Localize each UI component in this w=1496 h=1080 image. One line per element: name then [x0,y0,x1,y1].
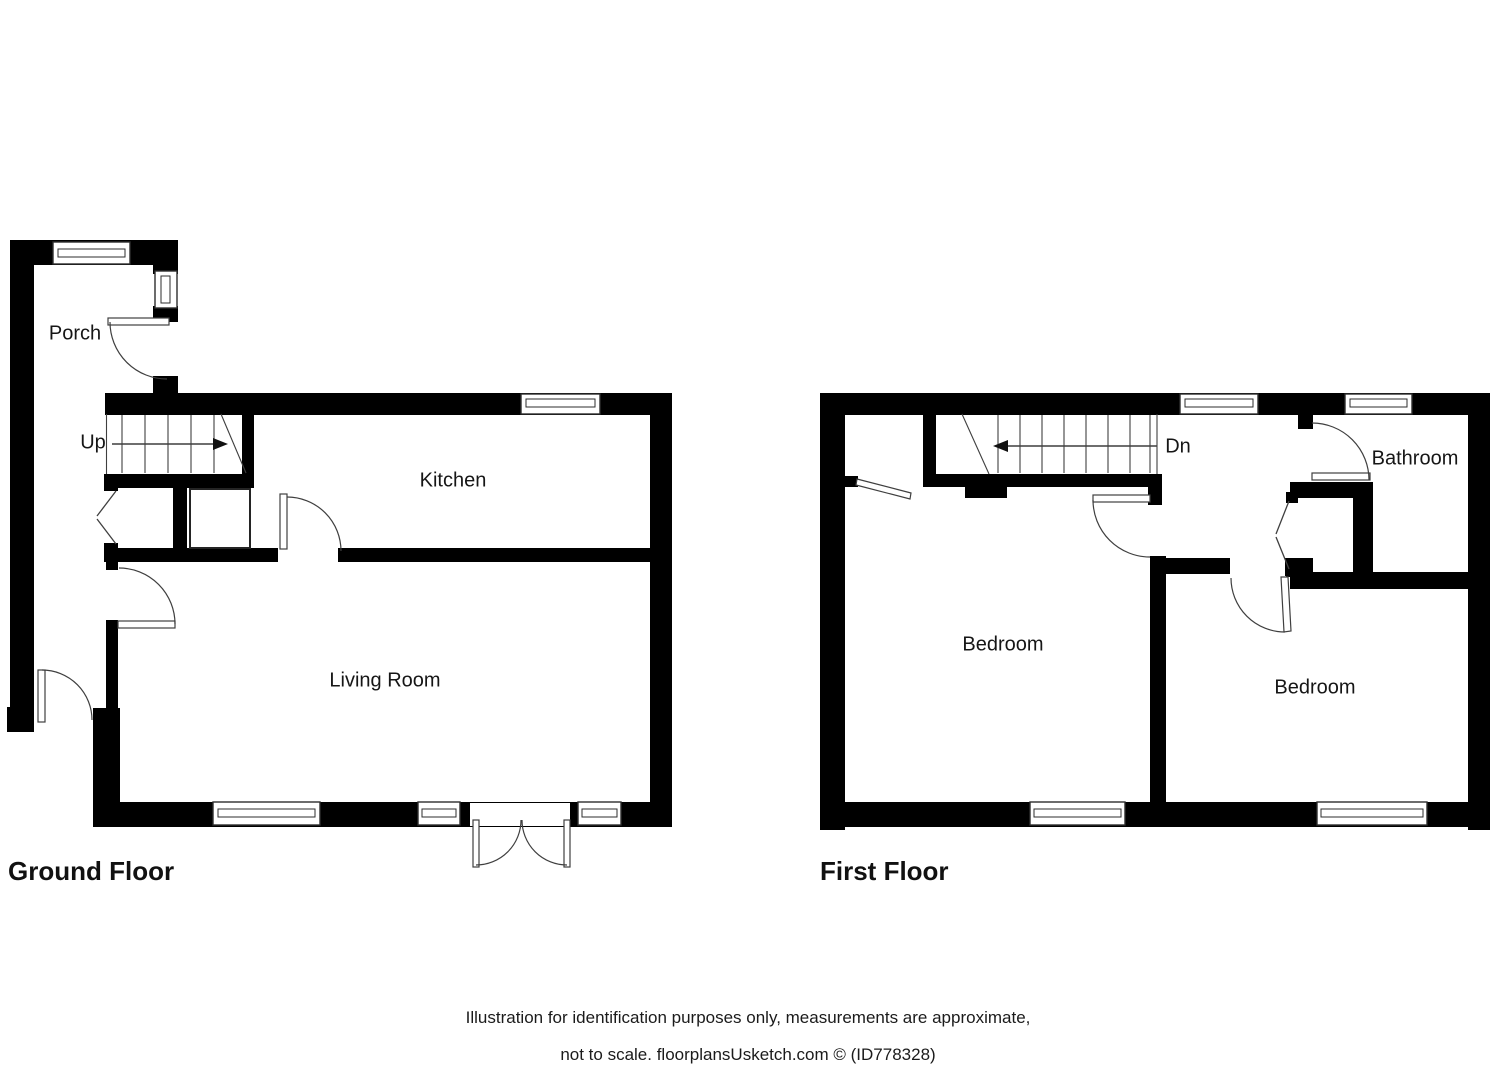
kitchen-window [521,394,600,414]
living-room-window-right [578,802,621,825]
living-room-window-left [213,802,320,825]
first-floor-windows [1030,394,1427,825]
stairs-label-up: Up [80,432,106,455]
patio-double-doors [470,803,570,867]
down-arrow-icon [993,440,1157,452]
bathroom-door [1312,423,1370,480]
bedroom-left-window [1030,802,1125,825]
kitchen-door [280,494,341,551]
disclaimer-line-1: Illustration for identification purposes… [466,999,1031,1036]
porch-window-top [53,242,130,264]
understairs-cupboard-box [190,489,250,548]
bedroom-right-door [1231,577,1291,632]
bedroom-right-window [1317,802,1427,825]
porch-inner-door [108,318,169,379]
up-arrow-icon [112,438,228,450]
living-room-door [118,568,175,628]
living-room-window-mid [418,802,460,825]
room-label-bathroom: Bathroom [1372,448,1459,471]
first-floor-stairs [962,414,1157,474]
disclaimer-line-2: not to scale. floorplansUsketch.com © (I… [466,1036,1031,1073]
porch-window-side [155,271,177,308]
closet-door [856,479,911,499]
room-label-bedroom-right: Bedroom [1274,677,1355,700]
room-label-bedroom-left: Bedroom [962,634,1043,657]
understairs-cupboard-door [97,491,116,544]
floorplan-page: Porch Up Kitchen Living Room Ground Floo… [0,0,1496,1080]
bathroom-window [1345,394,1412,414]
room-label-kitchen: Kitchen [420,470,487,493]
room-label-porch: Porch [49,323,101,346]
stairs-label-dn: Dn [1165,436,1191,459]
floorplan-drawing [0,0,1496,1080]
ground-floor-stairs [107,414,247,474]
front-door [38,670,92,722]
landing-window [1180,394,1258,414]
bedroom-left-door [1093,495,1150,557]
disclaimer-text: Illustration for identification purposes… [466,999,1031,1073]
ground-floor-windows [53,242,621,825]
ground-floor-walls [7,240,672,827]
ground-floor-title: Ground Floor [8,856,174,887]
room-label-living-room: Living Room [329,670,440,693]
ground-floor-plan [7,240,672,867]
first-floor-title: First Floor [820,856,949,887]
